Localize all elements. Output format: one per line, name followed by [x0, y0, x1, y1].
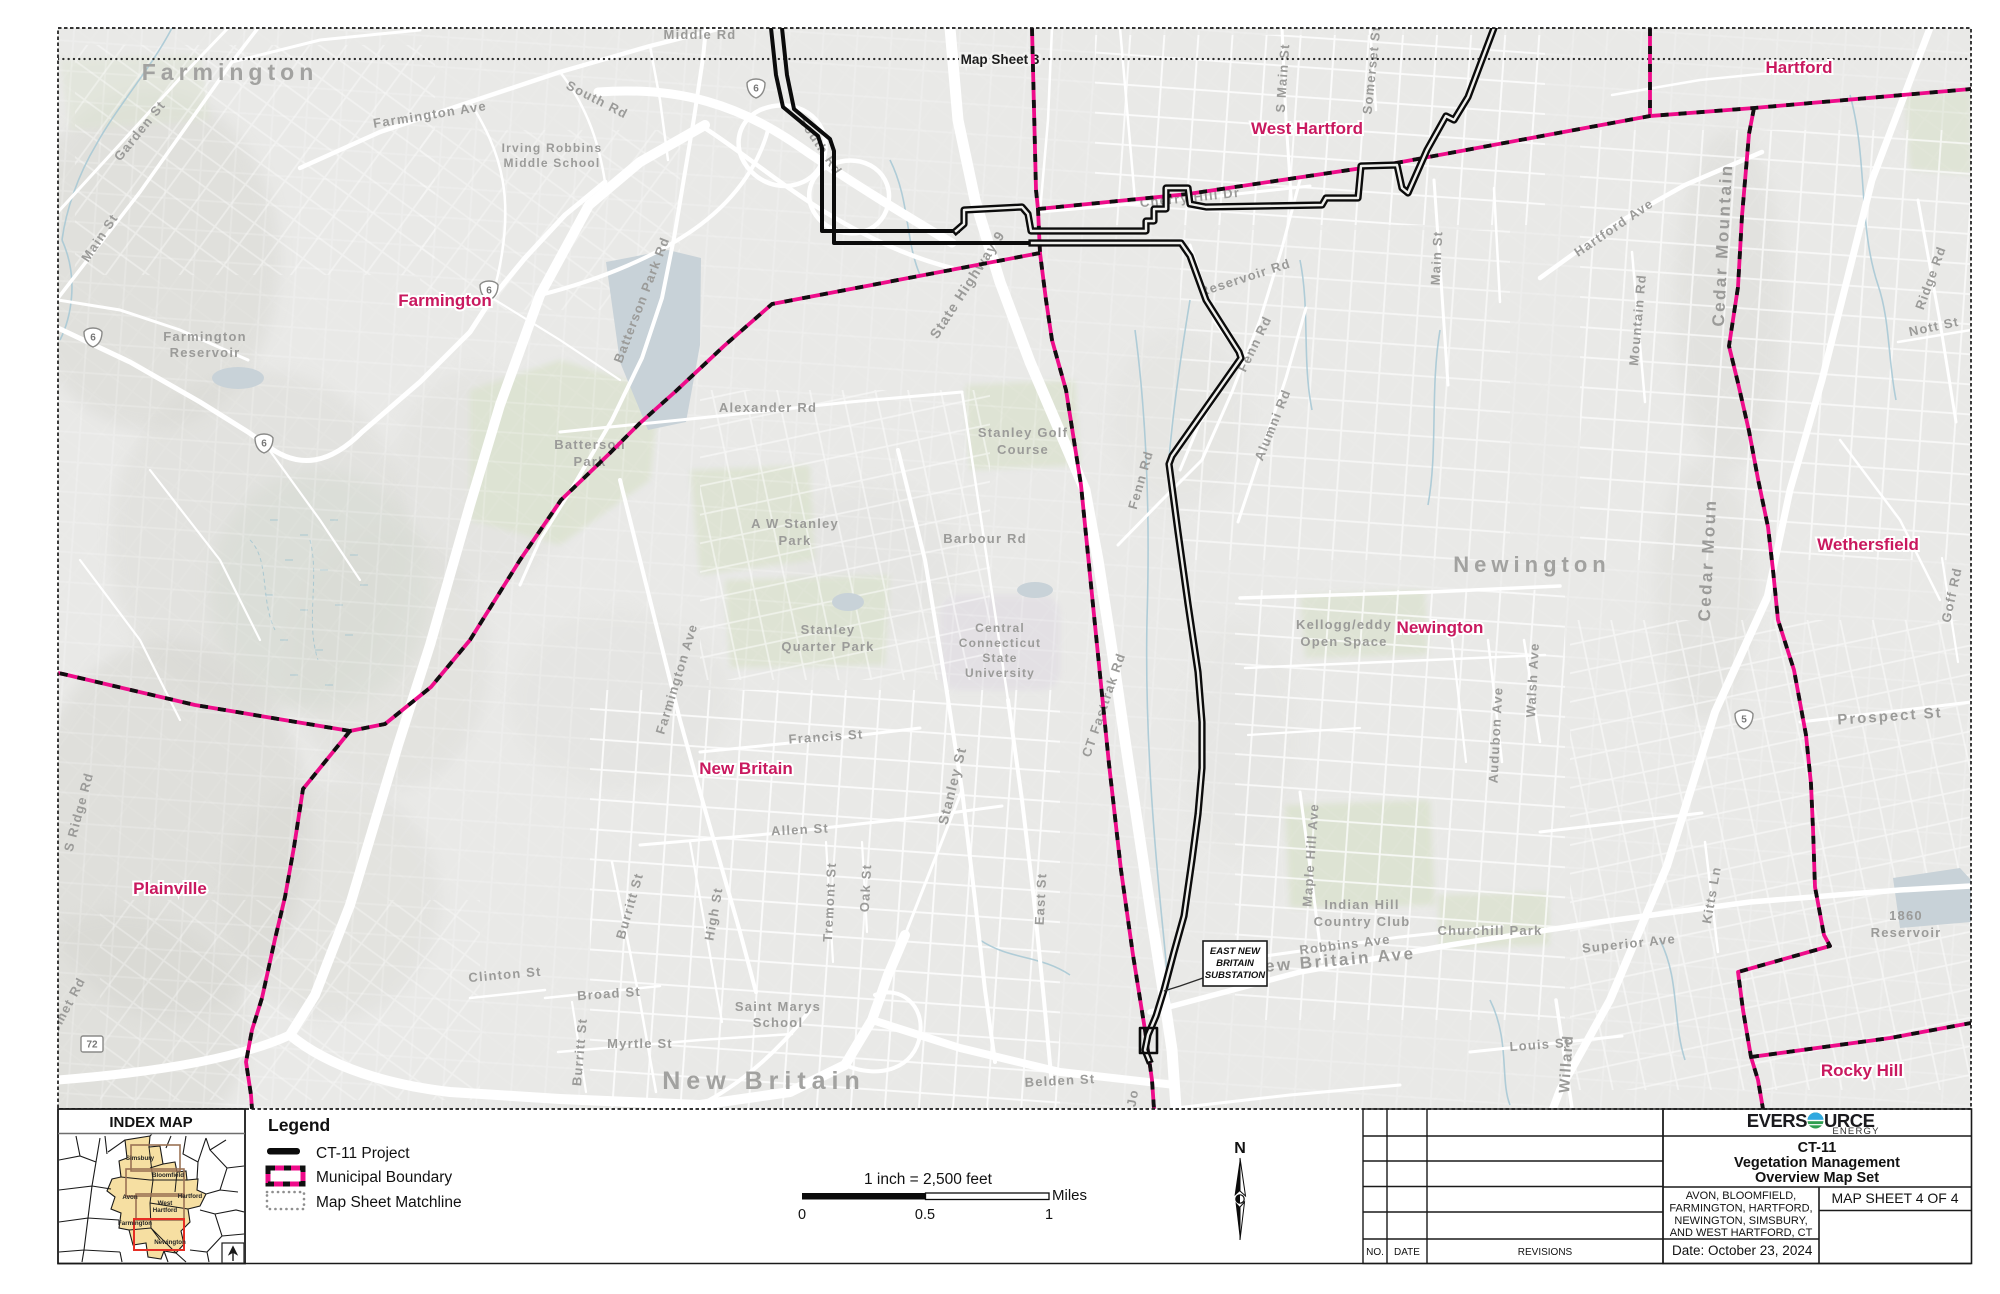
svg-text:East St: East St [1032, 872, 1050, 925]
svg-text:1: 1 [1045, 1207, 1053, 1223]
svg-text:Oak St: Oak St [857, 863, 875, 912]
svg-text:NO.: NO. [1366, 1247, 1384, 1258]
svg-text:Indian Hill: Indian Hill [1324, 897, 1399, 912]
svg-text:DATE: DATE [1394, 1247, 1420, 1258]
svg-text:AVON, BLOOMFIELD,: AVON, BLOOMFIELD, [1686, 1190, 1796, 1202]
svg-text:6: 6 [90, 333, 96, 344]
svg-text:Legend: Legend [268, 1115, 330, 1135]
svg-text:1 inch = 2,500 feet: 1 inch = 2,500 feet [864, 1171, 993, 1188]
svg-text:Country Club: Country Club [1314, 914, 1411, 929]
svg-text:West Hartford: West Hartford [1251, 119, 1363, 138]
svg-text:0: 0 [798, 1207, 806, 1223]
svg-text:Quarter Park: Quarter Park [781, 639, 874, 654]
svg-text:CT-11: CT-11 [1798, 1140, 1837, 1156]
svg-text:72: 72 [86, 1040, 98, 1051]
svg-text:Map Sheet Matchline: Map Sheet Matchline [316, 1194, 462, 1211]
svg-text:6: 6 [261, 439, 267, 450]
svg-text:Farmington: Farmington [163, 329, 247, 344]
svg-text:Churchill Park: Churchill Park [1438, 923, 1543, 938]
svg-text:Overview Map Set: Overview Map Set [1755, 1170, 1879, 1186]
svg-text:Farmington: Farmington [398, 291, 492, 310]
svg-text:Jo: Jo [1124, 1088, 1142, 1108]
svg-text:Map Sheet 3: Map Sheet 3 [961, 52, 1040, 67]
svg-text:Miles: Miles [1052, 1187, 1087, 1204]
svg-text:Reservoir: Reservoir [170, 345, 241, 360]
svg-text:Farmington: Farmington [142, 59, 319, 85]
svg-text:Hartford: Hartford [1765, 58, 1832, 77]
svg-text:ENERGY: ENERGY [1832, 1126, 1879, 1137]
svg-text:Course: Course [997, 442, 1049, 457]
svg-text:Main St: Main St [1428, 230, 1446, 285]
svg-text:Allen St: Allen St [771, 820, 830, 838]
svg-text:NEWINGTON, SIMSBURY,: NEWINGTON, SIMSBURY, [1674, 1215, 1807, 1227]
svg-text:Vegetation Management: Vegetation Management [1734, 1155, 1900, 1171]
svg-text:Central: Central [975, 621, 1025, 635]
svg-text:Plainville: Plainville [133, 879, 207, 898]
svg-text:Middle Rd: Middle Rd [664, 27, 737, 42]
svg-text:Bloomfield: Bloomfield [152, 1172, 184, 1179]
svg-text:Irving Robbins: Irving Robbins [502, 141, 603, 155]
svg-text:Newington: Newington [154, 1239, 186, 1246]
svg-text:Reservoir: Reservoir [1871, 925, 1942, 940]
svg-text:Simsbury: Simsbury [126, 1155, 155, 1162]
svg-text:Myrtle St: Myrtle St [607, 1036, 673, 1051]
svg-text:BRITAIN: BRITAIN [1216, 958, 1255, 969]
svg-text:West: West [158, 1200, 173, 1207]
svg-text:SUBSTATION: SUBSTATION [1205, 970, 1266, 981]
svg-text:School: School [753, 1015, 804, 1030]
svg-text:Municipal Boundary: Municipal Boundary [316, 1169, 452, 1186]
svg-text:Farmington: Farmington [118, 1220, 152, 1227]
svg-text:Alexander Rd: Alexander Rd [719, 400, 817, 415]
svg-text:INDEX MAP: INDEX MAP [109, 1114, 192, 1131]
svg-text:Wethersfield: Wethersfield [1817, 535, 1919, 554]
svg-text:CT-11 Project: CT-11 Project [316, 1145, 410, 1162]
svg-text:Newington: Newington [1453, 552, 1610, 577]
svg-text:Stanley: Stanley [801, 622, 856, 637]
svg-text:Connecticut: Connecticut [959, 636, 1042, 650]
svg-text:5: 5 [1741, 715, 1747, 726]
svg-text:Open Space: Open Space [1300, 634, 1387, 649]
svg-text:A W Stanley: A W Stanley [751, 516, 839, 531]
svg-text:FARMINGTON, HARTFORD,: FARMINGTON, HARTFORD, [1669, 1203, 1812, 1215]
svg-text:Park: Park [779, 533, 812, 548]
svg-text:0.5: 0.5 [915, 1207, 935, 1223]
svg-text:University: University [965, 666, 1035, 680]
svg-text:Barbour Rd: Barbour Rd [943, 531, 1027, 546]
svg-text:1860: 1860 [1889, 908, 1923, 923]
svg-text:EVERS: EVERS [1747, 1110, 1807, 1131]
svg-text:Newington: Newington [1397, 618, 1484, 637]
svg-text:Hartford: Hartford [178, 1193, 203, 1200]
svg-text:Rocky Hill: Rocky Hill [1821, 1061, 1903, 1080]
svg-text:State: State [982, 651, 1017, 665]
svg-text:EAST NEW: EAST NEW [1210, 946, 1261, 957]
svg-text:Hartford: Hartford [153, 1207, 178, 1214]
svg-text:MAP SHEET 4 OF 4: MAP SHEET 4 OF 4 [1831, 1190, 1958, 1206]
svg-text:Avon: Avon [122, 1194, 137, 1201]
svg-text:Kellogg/eddy: Kellogg/eddy [1296, 617, 1392, 632]
svg-text:Stanley Golf: Stanley Golf [978, 425, 1068, 440]
svg-text:Date: October 23, 2024: Date: October 23, 2024 [1672, 1243, 1813, 1258]
svg-text:New Britain: New Britain [699, 759, 793, 778]
svg-text:Saint Marys: Saint Marys [735, 999, 821, 1014]
svg-text:N: N [1234, 1140, 1246, 1157]
svg-text:REVISIONS: REVISIONS [1518, 1247, 1573, 1258]
svg-text:AND WEST HARTFORD, CT: AND WEST HARTFORD, CT [1670, 1227, 1813, 1239]
svg-text:6: 6 [753, 84, 759, 95]
svg-text:New Britain: New Britain [662, 1067, 866, 1095]
svg-text:Middle School: Middle School [504, 156, 601, 170]
